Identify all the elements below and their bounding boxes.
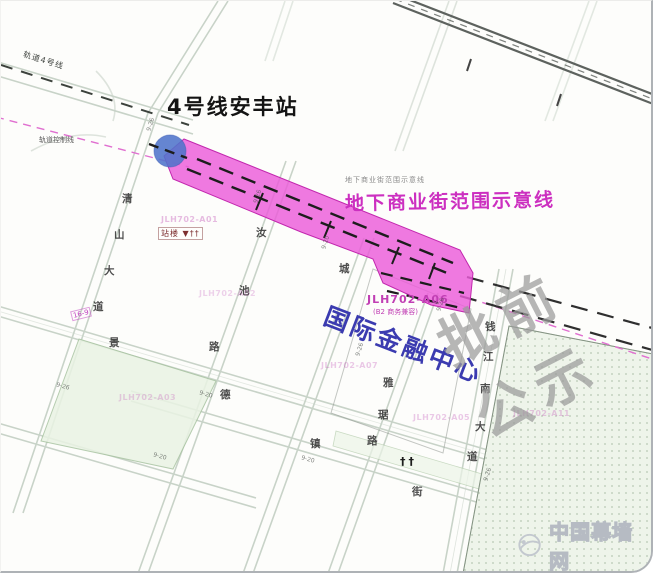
parcel-code: JLH702-A03 (119, 393, 176, 402)
road-name-char: 镇 (310, 436, 321, 451)
road-name-char: 大 (104, 263, 115, 278)
parcel-code: JLH702-A05 (413, 413, 470, 422)
road-name-char: 路 (209, 339, 220, 354)
parcel-code: JLH702-A01 (161, 215, 218, 224)
corridor-label: 地下商业街范围示意线 (345, 185, 555, 216)
planning-map-card: 4号线安丰站 地下商业街范围示意线 地下商业街范围示意线 国际金融中心 JLH7… (0, 0, 653, 573)
tree-icons: †† (400, 455, 417, 468)
road-name-char: 琚 (378, 407, 389, 422)
screenshot-root: 4号线安丰站 地下商业街范围示意线 地下商业街范围示意线 国际金融中心 JLH7… (0, 0, 654, 578)
road-name-char: 路 (367, 433, 378, 448)
road-name-char: 汝 (256, 225, 267, 240)
parcel-code: JLH702-A02 (199, 289, 256, 298)
road-name-char: 清 (122, 191, 133, 206)
road-name-char: 德 (220, 387, 231, 402)
corridor-note: 地下商业街范围示意线 (345, 175, 425, 185)
site-logo-icon (515, 530, 544, 560)
road-name-char: 雅 (383, 375, 394, 390)
station-title: 4号线安丰站 (167, 91, 299, 121)
road-name-char: 道 (467, 449, 478, 464)
rail-control-label: 轨道控制线 (39, 135, 74, 145)
road-name-char: 街 (412, 484, 423, 499)
road-name-char: 山 (114, 227, 125, 242)
site-watermark-text: 中国幕墙网 (549, 516, 651, 573)
parcel-use-a06: (B2 商务兼容) (373, 307, 418, 317)
station-amenity-box: 站楼 ▼†† (158, 227, 203, 240)
site-watermark: 中国幕墙网 (515, 516, 651, 573)
rail-line4-dashes (1, 65, 189, 125)
road-name-char: 景 (109, 335, 120, 350)
railway (393, 1, 651, 107)
parcel-code: JLH702-A07 (321, 361, 378, 370)
road-name-char: 道 (93, 299, 104, 314)
road-name-char: 城 (339, 261, 350, 276)
